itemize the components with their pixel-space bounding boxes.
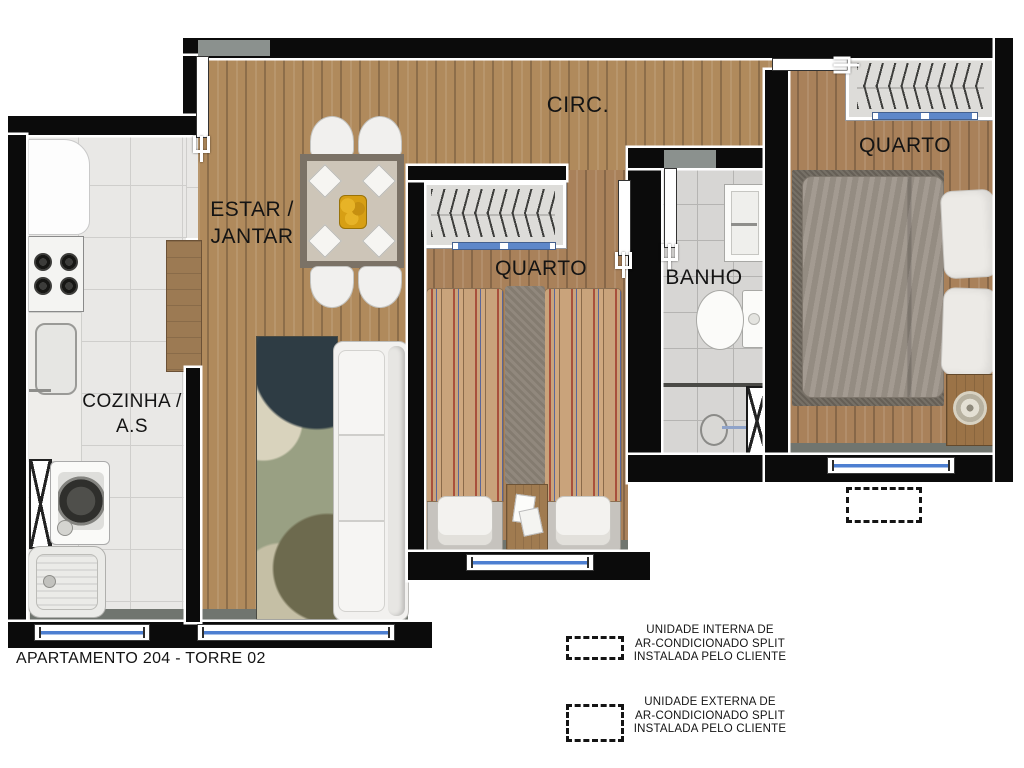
legend-symbol-external-ac: [566, 704, 624, 742]
legend-text-internal-ac: UNIDADE INTERNA DE AR-CONDICIONADO SPLIT…: [628, 624, 792, 665]
legend-line: INSTALADA PELO CLIENTE: [628, 651, 792, 665]
plate: [308, 164, 342, 198]
stove-burner: [34, 277, 52, 295]
nightstand: [946, 374, 996, 446]
hanger-row-icon: [431, 212, 555, 237]
room-label-quarto-right: QUARTO: [845, 134, 965, 158]
kitchen-faucet-icon: [29, 389, 51, 392]
dining-chair: [358, 116, 402, 158]
room-label-circ: CIRC.: [518, 93, 638, 118]
wall: [995, 38, 1013, 482]
bedroom-rug: [505, 286, 545, 484]
room-label-cozinha: COZINHA / A.S: [80, 389, 184, 439]
fruit-bowl: [339, 195, 367, 229]
toilet-bowl: [696, 290, 744, 350]
double-bed-duvet: [802, 176, 944, 398]
nightstand: [506, 484, 548, 550]
entry-door-opening: [198, 40, 270, 56]
room-label-line: A.S: [116, 416, 148, 437]
stove: [28, 236, 84, 312]
laundry-tank-drain: [43, 575, 56, 588]
window-glass: [832, 460, 950, 471]
door-hinge-icon: [615, 252, 632, 278]
kitchen-divider-cabinet: [166, 240, 202, 372]
room-label-line: ESTAR /: [210, 198, 294, 221]
wall: [8, 116, 198, 135]
room-label-line: COZINHA /: [82, 391, 182, 412]
window-glass: [39, 627, 145, 638]
window-glass: [202, 627, 390, 638]
vanity-faucet-icon: [731, 223, 757, 226]
wall: [183, 38, 1013, 58]
room-label-banho: BANHO: [650, 266, 758, 290]
washing-machine: [50, 461, 110, 545]
single-bed: [426, 288, 504, 554]
sofa: [333, 341, 409, 621]
entry-door: [196, 56, 209, 138]
laundry-tank: [28, 546, 106, 618]
pillow: [940, 287, 997, 377]
wall: [8, 135, 26, 648]
legend-line: AR-CONDICIONADO SPLIT: [628, 710, 792, 724]
bathroom-vanity: [724, 184, 766, 262]
pillow: [437, 496, 493, 546]
window-bedroom-right: [827, 457, 955, 474]
window-kitchen: [34, 624, 150, 641]
plate: [362, 224, 396, 258]
living-rug: [256, 336, 338, 620]
papers: [519, 507, 544, 537]
room-label-quarto-middle: QUARTO: [481, 257, 601, 281]
hanger-row-icon: [857, 85, 984, 109]
stove-burner: [60, 253, 78, 271]
shower-drain: [700, 414, 728, 446]
legend-line: INSTALADA PELO CLIENTE: [628, 723, 792, 737]
washer-knob: [57, 520, 73, 536]
ironing-board: [29, 459, 52, 549]
pillow: [555, 496, 611, 546]
toilet-flush-icon: [748, 313, 760, 325]
window-glass: [471, 557, 589, 568]
kitchen-sink: [35, 323, 77, 395]
wardrobe: [420, 182, 566, 248]
bathroom-door: [664, 168, 677, 248]
wall: [628, 166, 661, 482]
window-bedroom-middle: [466, 554, 594, 571]
wall: [408, 166, 424, 580]
table-lamp: [953, 391, 987, 425]
sofa-cushions: [338, 350, 385, 612]
legend-symbol-internal-ac: [566, 636, 624, 660]
plate: [362, 164, 396, 198]
legend-line: AR-CONDICIONADO SPLIT: [628, 638, 792, 652]
room-label-line: JANTAR: [210, 225, 293, 248]
door-hinge-icon: [193, 136, 210, 162]
room-label-estar-jantar: ESTAR / JANTAR: [202, 196, 302, 250]
fridge: [28, 139, 90, 235]
kitchen-counter: [28, 312, 82, 462]
plate: [308, 224, 342, 258]
bedspread: [426, 288, 504, 502]
sofa-backrest: [388, 346, 405, 616]
legend-line: UNIDADE EXTERNA DE: [628, 696, 792, 710]
legend-line: UNIDADE INTERNA DE: [628, 624, 792, 638]
wardrobe-sliding-door: [452, 242, 556, 250]
wall: [186, 368, 200, 622]
pillow: [940, 189, 999, 280]
legend-text-external-ac: UNIDADE EXTERNA DE AR-CONDICIONADO SPLIT…: [628, 696, 792, 737]
bathroom-door-opening: [664, 150, 716, 168]
bedspread: [544, 288, 622, 502]
window-living: [197, 624, 395, 641]
door-hinge-icon: [834, 57, 860, 74]
single-bed: [544, 288, 622, 554]
plan-title: APARTAMENTO 204 - TORRE 02: [16, 650, 266, 668]
dining-chair: [310, 116, 354, 158]
floor-plan: CIRC. ESTAR / JANTAR COZINHA / A.S QUART…: [0, 0, 1024, 768]
toilet-tank: [742, 290, 766, 348]
wardrobe: [846, 56, 995, 120]
ac-external-unit-box: [846, 487, 922, 523]
wall: [408, 166, 566, 180]
wall: [765, 70, 788, 455]
bedroom-middle-door: [618, 180, 631, 256]
stove-burner: [60, 277, 78, 295]
dining-table: [300, 154, 404, 268]
stove-burner: [34, 253, 52, 271]
wardrobe-sliding-door: [872, 112, 978, 120]
